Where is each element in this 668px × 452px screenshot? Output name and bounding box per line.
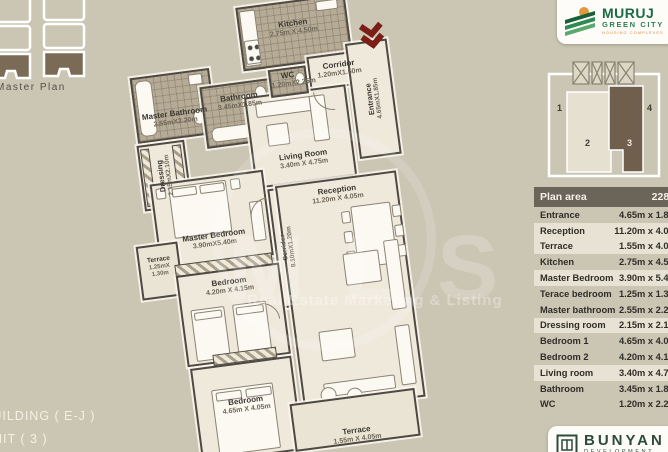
row-label: WC bbox=[540, 399, 556, 409]
room-label-living-room: Living Room 3.40m X 4.75m bbox=[254, 144, 354, 175]
chair bbox=[341, 211, 351, 224]
bunyan-name: BUNYAN bbox=[584, 433, 665, 448]
row-value: 3.45m x 1.85m bbox=[619, 384, 668, 394]
keyplan-unit-3: 3 bbox=[627, 138, 632, 148]
row-value: 4.20m x 4.15m bbox=[619, 352, 668, 362]
muruj-logo-icon bbox=[563, 4, 597, 38]
sink bbox=[315, 0, 338, 11]
table-row: Bedroom 14.65m x 4.05m bbox=[534, 333, 668, 349]
row-label: Bedroom 1 bbox=[540, 336, 589, 346]
floorplan-sheet: Kitchen 2.75m X 4.50m Master Bathroom 2.… bbox=[0, 0, 668, 452]
room-bedroom-bottom: Bedroom 4.65m X 4.05m bbox=[190, 356, 304, 452]
room-label-terrace-bottom: Terrace 1.55m X 4.05m bbox=[295, 418, 418, 452]
muruj-name: MURUJ bbox=[602, 6, 664, 20]
table-header: Plan area 228m² bbox=[534, 187, 668, 207]
table-row: Dressing room2.15m x 2.10m bbox=[534, 318, 668, 334]
nightstand bbox=[230, 178, 241, 190]
row-value: 1.20m x 2.25m bbox=[619, 399, 668, 409]
row-value: 2.15m x 2.10m bbox=[619, 320, 668, 330]
table-row: Master bathroom2.55m x 2.20m bbox=[534, 302, 668, 318]
row-label: Master bathroom bbox=[540, 305, 615, 315]
row-label: Bedroom 2 bbox=[540, 352, 589, 362]
master-plan-thumbnail bbox=[0, 0, 106, 80]
room-label-bedroom-mid: Bedroom 4.20m X 4.15m bbox=[179, 271, 280, 302]
row-value: 3.40m x 4.75m bbox=[619, 368, 668, 378]
sink bbox=[188, 73, 203, 86]
row-label: Terace bedroom bbox=[540, 289, 612, 299]
stove bbox=[244, 39, 262, 65]
bunyan-division: DEVELOPMENT bbox=[584, 448, 665, 452]
coffee-table bbox=[266, 122, 291, 147]
master-plan-caption: Master Plan bbox=[0, 82, 66, 93]
armchair bbox=[318, 327, 356, 361]
row-value: 11.20m x 4.05m bbox=[614, 226, 668, 236]
muruj-city: GREEN CITY bbox=[602, 20, 664, 30]
sofa bbox=[394, 324, 417, 385]
room-entrance: Entrance 4.65mX1.85m bbox=[345, 38, 402, 158]
bunyan-logo-card: BUNYAN DEVELOPMENT bbox=[548, 426, 668, 452]
chair bbox=[343, 231, 353, 244]
row-label: Dressing room bbox=[540, 320, 606, 330]
row-label: Reception bbox=[540, 226, 585, 236]
table-row: Living room3.40m x 4.75m bbox=[534, 365, 668, 381]
table-row: Bathroom3.45m x 1.85m bbox=[534, 381, 668, 397]
row-label: Kitchen bbox=[540, 257, 574, 267]
row-label: Master Bedroom bbox=[540, 273, 613, 283]
muruj-tagline: HOUSING COMPLEXES bbox=[602, 30, 664, 36]
row-value: 4.65m x 4.05m bbox=[619, 336, 668, 346]
bunyan-logo-icon bbox=[556, 434, 578, 452]
row-value: 3.90m x 5.40m bbox=[619, 273, 668, 283]
row-value: 1.55m x 4.05m bbox=[619, 241, 668, 251]
room-name: WC bbox=[280, 70, 294, 81]
keyplan-unit-4: 4 bbox=[647, 103, 652, 113]
room-label-wc: WC 1.20mX2.25m bbox=[270, 69, 306, 91]
room-dims: 1.20mX2.25m bbox=[271, 78, 306, 91]
room-label-entrance: Entrance 4.65mX1.85m bbox=[363, 77, 384, 120]
plan-area-table: Plan area 228m² Entrance4.65m x 1.85m Re… bbox=[534, 187, 668, 412]
total-area: 228m² bbox=[652, 191, 668, 203]
table-row: Master Bedroom3.90m x 5.40m bbox=[534, 270, 668, 286]
room-label-kitchen: Kitchen 2.75m X 4.50m bbox=[240, 12, 347, 44]
chair bbox=[394, 224, 404, 237]
row-value: 1.25m x 1.30m bbox=[619, 289, 668, 299]
table-row: Terrace1.55m x 4.05m bbox=[534, 239, 668, 255]
room-reception: Reception 11.20m X 4.05m bbox=[275, 170, 426, 412]
table-row: Kitchen2.75m x 4.50m bbox=[534, 254, 668, 270]
chair bbox=[391, 204, 401, 217]
room-wc: WC 1.20mX2.25m bbox=[268, 65, 309, 98]
building-label: BUILDING ( E-J ) bbox=[0, 409, 96, 423]
keyplan-unit-2: 2 bbox=[585, 138, 590, 148]
unit-key-plan: 1 2 3 4 bbox=[543, 56, 665, 182]
unit-label: UNIT ( 3 ) bbox=[0, 432, 48, 446]
table-row: Terace bedroom1.25m x 1.30m bbox=[534, 286, 668, 302]
row-label: Entrance bbox=[540, 210, 580, 220]
table-row: Entrance4.65m x 1.85m bbox=[534, 207, 668, 223]
row-value: 2.75m x 4.50m bbox=[619, 257, 668, 267]
table-title: Plan area bbox=[540, 191, 587, 203]
row-value: 2.55m x 2.20m bbox=[619, 305, 668, 315]
keyplan-unit-1: 1 bbox=[557, 103, 562, 113]
table-row: WC1.20m x 2.25m bbox=[534, 397, 668, 413]
armchair bbox=[342, 249, 382, 285]
row-label: Bathroom bbox=[540, 384, 584, 394]
table-row: Reception11.20m x 4.05m bbox=[534, 223, 668, 239]
row-label: Terrace bbox=[540, 241, 573, 251]
entry-arrow-icon bbox=[355, 19, 389, 53]
row-label: Living room bbox=[540, 368, 593, 378]
muruj-logo-card: MURUJ GREEN CITY HOUSING COMPLEXES bbox=[557, 0, 668, 44]
row-value: 4.65m x 1.85m bbox=[619, 210, 668, 220]
table-row: Bedroom 24.20m x 4.15m bbox=[534, 349, 668, 365]
